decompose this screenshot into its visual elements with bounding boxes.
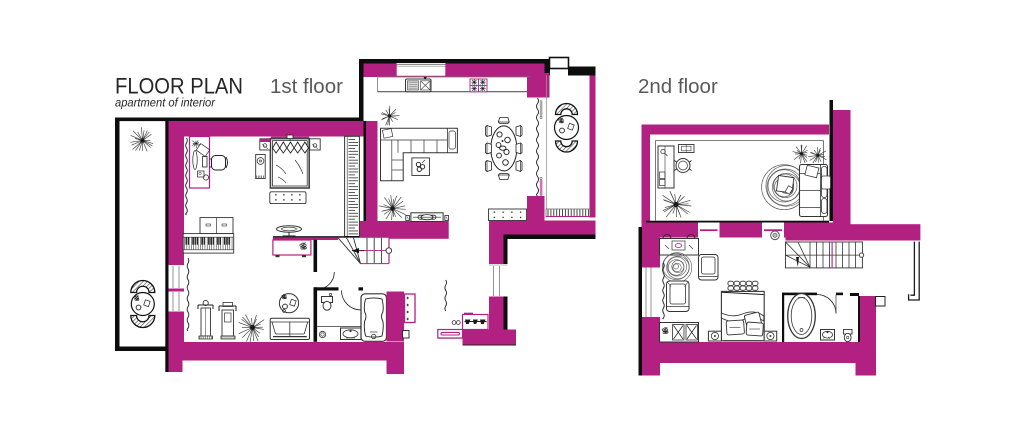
- svg-text:apartment of interior: apartment of interior: [115, 96, 216, 110]
- svg-text:1st floor: 1st floor: [270, 75, 343, 98]
- svg-text:2nd floor: 2nd floor: [638, 75, 718, 98]
